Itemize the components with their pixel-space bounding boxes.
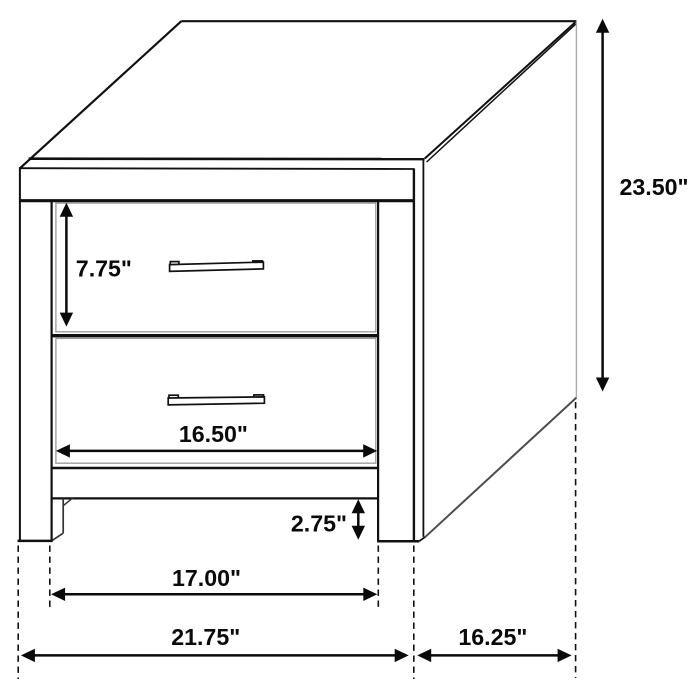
svg-text:21.75": 21.75" — [171, 624, 240, 650]
svg-text:23.50": 23.50" — [620, 174, 689, 200]
svg-text:2.75": 2.75" — [291, 511, 347, 537]
svg-text:16.50": 16.50" — [179, 421, 248, 447]
svg-text:7.75": 7.75" — [76, 256, 132, 282]
svg-text:17.00": 17.00" — [172, 565, 241, 591]
svg-text:16.25": 16.25" — [458, 624, 527, 650]
